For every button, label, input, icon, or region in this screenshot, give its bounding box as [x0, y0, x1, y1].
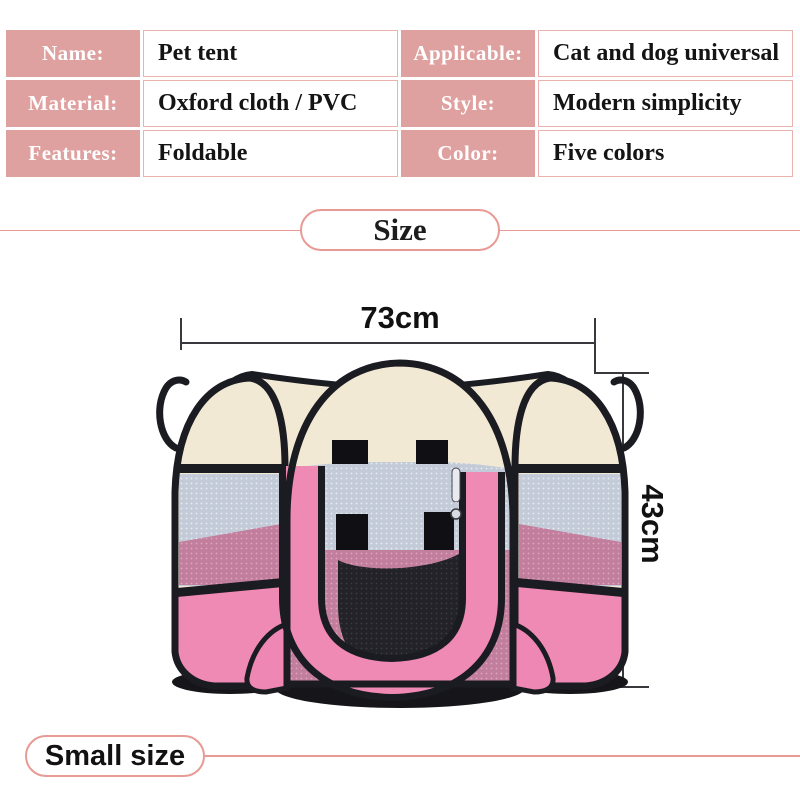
spec-label-style: Style:	[401, 80, 535, 127]
spec-value-material: Oxford cloth / PVC	[143, 80, 398, 127]
spec-label-material: Material:	[6, 80, 140, 127]
size-section-pill: Size	[300, 209, 500, 251]
width-dimension-line	[180, 342, 596, 344]
small-size-label: Small size	[45, 740, 185, 773]
spec-label-color: Color:	[401, 130, 535, 177]
tent-velcro-tab	[416, 440, 448, 464]
tent-zipper	[451, 468, 461, 519]
tent-velcro-tab	[424, 512, 454, 550]
width-dimension-tick-left	[180, 318, 182, 350]
spec-value-features: Foldable	[143, 130, 398, 177]
spec-value-applicable: Cat and dog universal	[538, 30, 793, 77]
small-size-line	[203, 755, 800, 757]
spec-label-name: Name:	[6, 30, 140, 77]
spec-value-style: Modern simplicity	[538, 80, 793, 127]
spec-label-features: Features:	[6, 130, 140, 177]
spec-label-applicable: Applicable:	[401, 30, 535, 77]
spec-table: Name: Pet tent Applicable: Cat and dog u…	[6, 30, 794, 177]
spec-value-color: Five colors	[538, 130, 793, 177]
tent-velcro-tab	[336, 514, 368, 550]
small-size-pill: Small size	[25, 735, 205, 777]
spec-value-name: Pet tent	[143, 30, 398, 77]
width-dimension-label: 73cm	[320, 300, 480, 336]
pet-tent-illustration	[130, 352, 670, 712]
size-section-title: Size	[373, 212, 426, 248]
tent-velcro-tab	[332, 440, 368, 464]
